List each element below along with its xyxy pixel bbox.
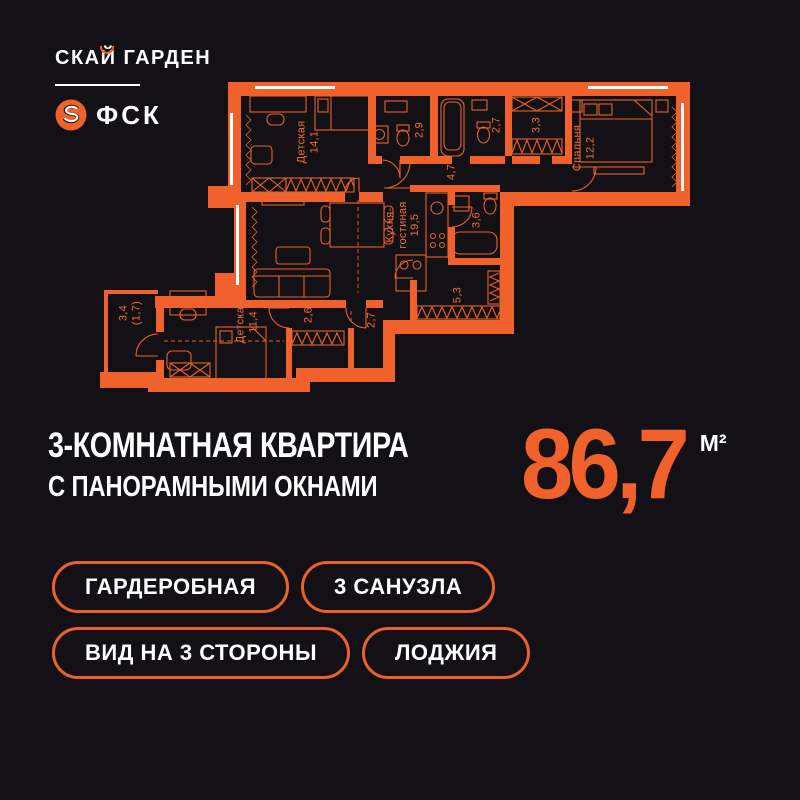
room-label-hall-53: 5,3 (452, 287, 465, 303)
badge-row-2: ВИД НА 3 СТОРОНЫ ЛОДЖИЯ (52, 627, 530, 679)
room-label-bath-29: 2,9 (414, 122, 427, 138)
apartment-area: 86,7 М² (521, 417, 727, 511)
room-label-bath-36: 3,6 (471, 212, 484, 228)
room-label-hall-27: 2,7 (366, 312, 379, 328)
room-label-loggia: 3,4(1,7) (117, 301, 142, 325)
room-label-kids-2: Детская11,4 (234, 301, 259, 344)
project-name: СКАЙ ГАРДЕН (55, 48, 211, 68)
headline-line1: 3-КОМНАТНАЯ КВАРТИРА (48, 428, 408, 463)
project-name-text: СКАЙ ГАРДЕН (55, 47, 211, 69)
badge-row-1: ГАРДЕРОБНАЯ 3 САНУЗЛА (52, 561, 530, 613)
room-label-wardrobe-26: 2,6 (303, 307, 316, 323)
badge-wardrobe: ГАРДЕРОБНАЯ (52, 561, 289, 613)
feature-badges: ГАРДЕРОБНАЯ 3 САНУЗЛА ВИД НА 3 СТОРОНЫ Л… (52, 561, 530, 679)
promo-card: СКАЙ ГАРДЕН ФСК (0, 0, 800, 800)
room-label-bath-27: 2,7 (491, 117, 504, 133)
fsk-s-ring-icon (55, 99, 87, 131)
room-label-wardrobe-33: 3,3 (531, 117, 544, 133)
room-label-kitchen-living: Кухня- гостиная19,5 (384, 201, 422, 248)
headline: 3-КОМНАТНАЯ КВАРТИРА С ПАНОРАМНЫМИ ОКНАМ… (48, 428, 488, 502)
room-label-kids-1: Детская14,1 (295, 121, 320, 164)
badge-bathrooms: 3 САНУЗЛА (301, 561, 495, 613)
area-unit: М² (700, 430, 727, 457)
badge-loggia: ЛОДЖИЯ (362, 627, 530, 679)
room-label-bedroom: Спальня12,2 (571, 125, 596, 171)
badge-views: ВИД НА 3 СТОРОНЫ (52, 627, 350, 679)
floor-plan: Детская14,1 2,9 2,7 3,3 Спальня12,2 4,7 … (100, 75, 700, 410)
area-value: 86,7 (521, 417, 685, 511)
headline-line2: С ПАНОРАМНЫМИ ОКНАМИ (48, 473, 408, 502)
room-label-hall-47: 4,7 (446, 164, 459, 180)
